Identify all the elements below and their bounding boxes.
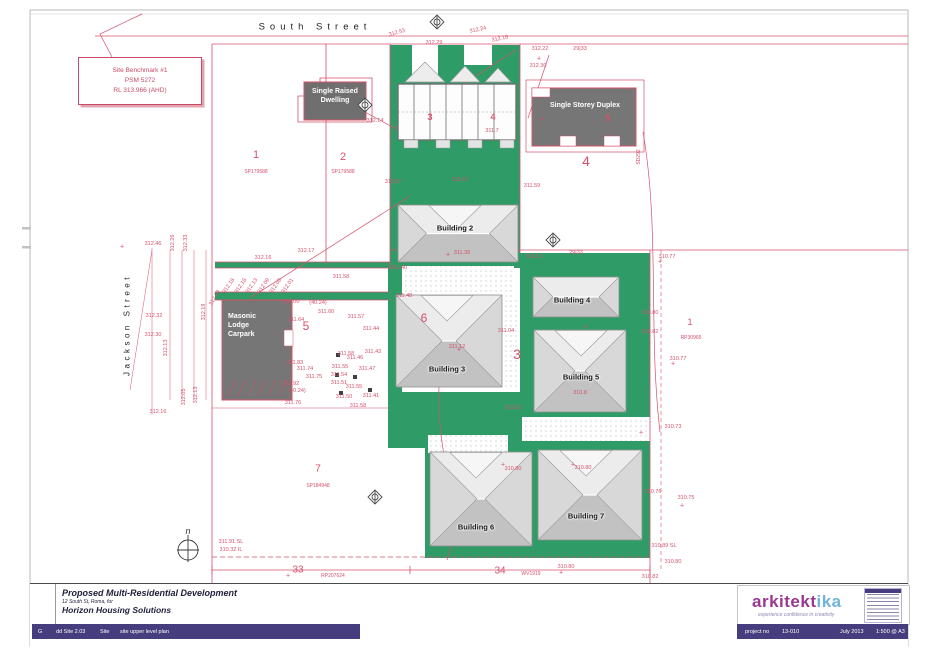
project-no-value: 13-010	[782, 629, 799, 635]
building-footprint	[396, 295, 502, 387]
contact-info-block	[864, 588, 902, 623]
north-arrow-icon	[177, 535, 199, 562]
phase-label: Site	[100, 629, 109, 635]
client-name: Horizon Housing Solutions	[62, 605, 171, 615]
building-footprint	[430, 452, 532, 546]
title-block: Proposed Multi-Residential Development 1…	[30, 583, 908, 647]
contact-text-lines	[867, 594, 899, 621]
tree-marker	[339, 391, 343, 395]
logo-accent-text: ika	[816, 592, 841, 611]
survey-marker-icon	[430, 15, 444, 29]
title-block-divider	[55, 584, 56, 624]
drawing-sheet: South Street Jackson Street n Site Bench…	[0, 0, 928, 656]
survey-marker-icon	[546, 233, 560, 247]
contact-header-bar	[865, 589, 901, 593]
sheet-name: site upper level plan	[120, 629, 169, 635]
logo-tagline: experience confidence in creativity	[758, 612, 834, 618]
project-info-bar: project no 13-010 July 2013 1:500 @ A3	[737, 624, 908, 639]
tree-marker	[335, 373, 339, 377]
tree-marker	[368, 388, 372, 392]
issue-date: July 2013	[840, 629, 864, 635]
duplex-floorplan	[398, 62, 516, 148]
project-no-label: project no	[745, 629, 769, 635]
project-title: Proposed Multi-Residential Development	[62, 588, 237, 598]
logo-main-text: arkitekt	[752, 592, 816, 611]
single-storey-duplex-area	[526, 80, 644, 152]
single-raised-dwelling-area	[298, 78, 372, 122]
logo-box: arkitektika experience confidence in cre…	[737, 585, 910, 625]
site-plan-drawing	[0, 0, 928, 656]
tree-marker	[353, 375, 357, 379]
drawing-scale: 1:500 @ A3	[876, 629, 905, 635]
arkitektika-logo: arkitektika	[752, 592, 842, 612]
building-footprint	[533, 277, 619, 317]
revision-code: G	[38, 629, 42, 635]
building-footprint	[534, 330, 626, 412]
sheet-info-bar: G dd Site 2.03 Site site upper level pla…	[32, 624, 360, 639]
masonic-carpark-area	[222, 300, 293, 400]
survey-marker-icon	[368, 490, 382, 504]
tree-marker	[336, 353, 340, 357]
building-footprint	[398, 205, 518, 262]
building-footprint	[538, 450, 642, 540]
doc-code: dd Site 2.03	[56, 629, 85, 635]
